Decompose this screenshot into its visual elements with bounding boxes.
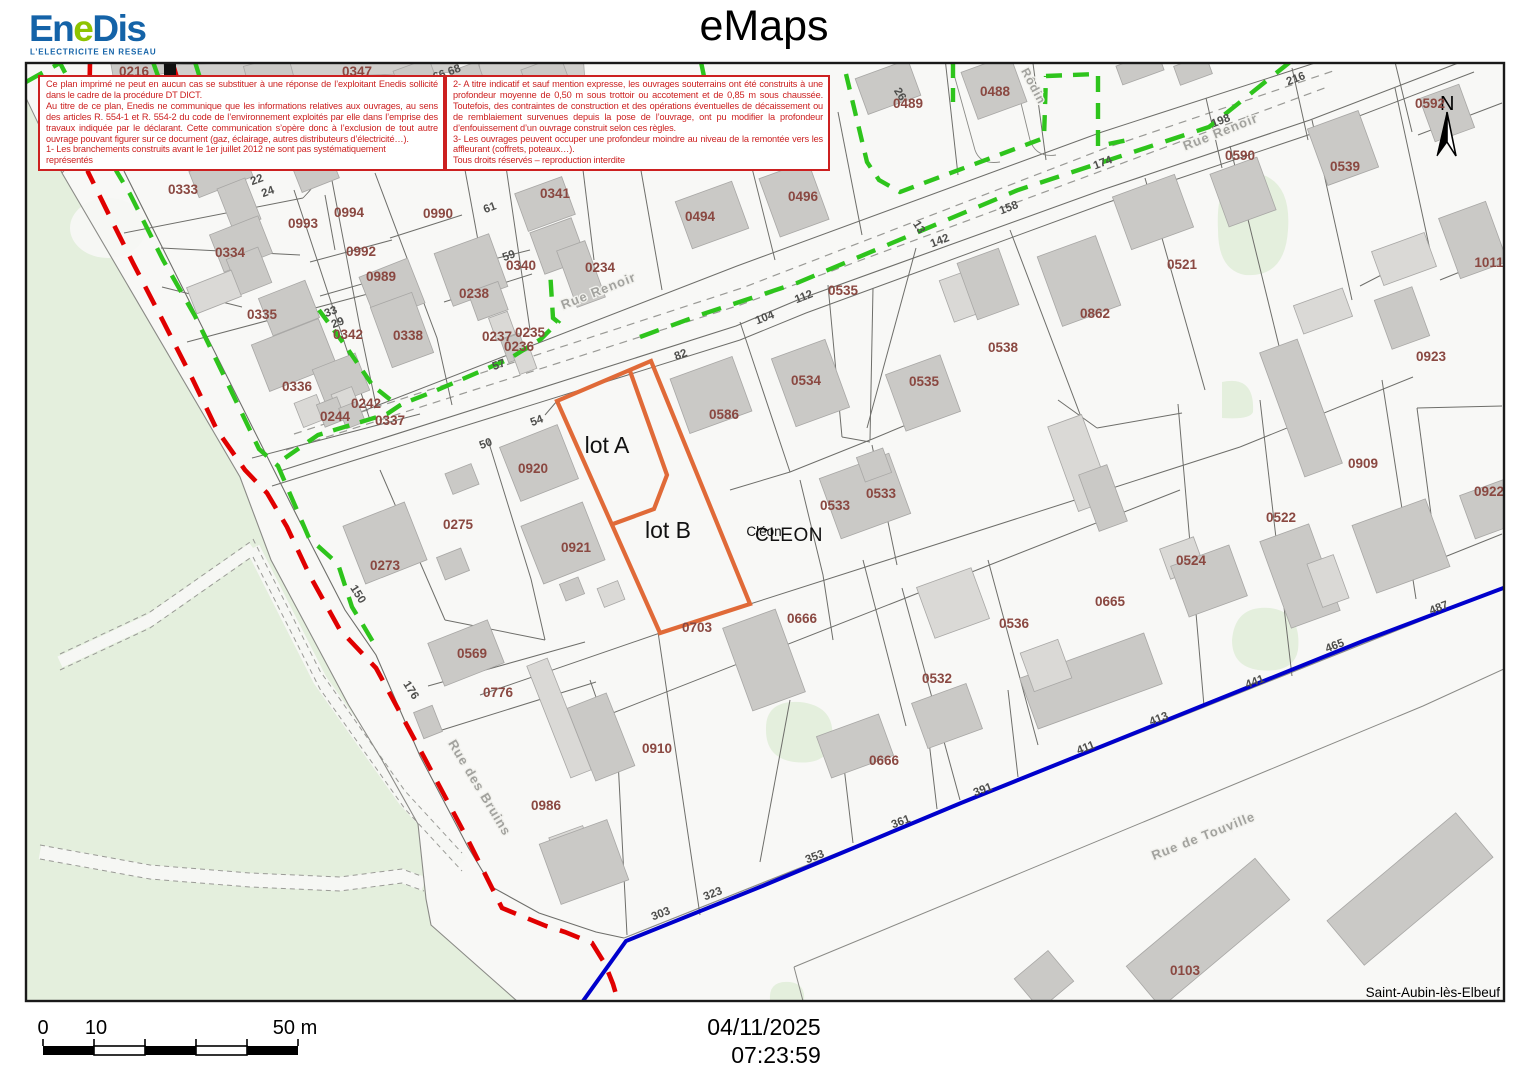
svg-text:0244: 0244	[320, 409, 351, 424]
svg-text:04/11/2025: 04/11/2025	[707, 1014, 820, 1040]
svg-text:0533: 0533	[820, 498, 851, 513]
svg-text:0922: 0922	[1474, 484, 1504, 499]
svg-text:0333: 0333	[168, 182, 199, 197]
svg-text:lot A: lot A	[585, 432, 630, 458]
svg-text:0535: 0535	[909, 374, 940, 389]
svg-text:0534: 0534	[791, 373, 822, 388]
svg-text:0338: 0338	[393, 328, 424, 343]
svg-text:0539: 0539	[1330, 159, 1360, 174]
svg-text:0273: 0273	[370, 558, 401, 573]
svg-text:0334: 0334	[215, 245, 246, 260]
svg-text:0910: 0910	[642, 741, 672, 756]
svg-text:0337: 0337	[375, 413, 405, 428]
svg-text:0569: 0569	[457, 646, 487, 661]
svg-text:0538: 0538	[988, 340, 1019, 355]
svg-text:0494: 0494	[685, 209, 716, 224]
svg-text:0522: 0522	[1266, 510, 1296, 525]
svg-text:0586: 0586	[709, 407, 740, 422]
svg-text:0992: 0992	[346, 244, 376, 259]
svg-text:0103: 0103	[1170, 963, 1201, 978]
svg-text:0336: 0336	[282, 379, 313, 394]
svg-text:0536: 0536	[999, 616, 1030, 631]
svg-text:0496: 0496	[788, 189, 819, 204]
svg-text:0242: 0242	[351, 396, 381, 411]
svg-text:0776: 0776	[483, 685, 514, 700]
svg-text:0990: 0990	[423, 206, 453, 221]
svg-text:0533: 0533	[866, 486, 897, 501]
svg-text:0989: 0989	[366, 269, 396, 284]
svg-text:0920: 0920	[518, 461, 548, 476]
svg-text:0235: 0235	[515, 325, 546, 340]
svg-text:Saint-Aubin-lès-Elbeuf: Saint-Aubin-lès-Elbeuf	[1366, 985, 1501, 1000]
svg-text:0666: 0666	[787, 611, 818, 626]
svg-text:0665: 0665	[1095, 594, 1126, 609]
svg-text:0: 0	[37, 1017, 48, 1039]
svg-text:lot B: lot B	[645, 517, 691, 543]
svg-text:0335: 0335	[247, 307, 278, 322]
svg-text:0521: 0521	[1167, 257, 1198, 272]
svg-text:0703: 0703	[682, 620, 713, 635]
svg-text:1011: 1011	[1474, 255, 1504, 270]
svg-text:0666: 0666	[869, 753, 900, 768]
svg-text:CLEON: CLEON	[755, 525, 823, 546]
svg-text:0234: 0234	[585, 260, 616, 275]
svg-text:0488: 0488	[980, 84, 1011, 99]
svg-text:0532: 0532	[922, 671, 952, 686]
svg-text:0592: 0592	[1415, 96, 1445, 111]
svg-text:0524: 0524	[1176, 553, 1207, 568]
svg-text:0986: 0986	[531, 798, 562, 813]
svg-text:0590: 0590	[1225, 148, 1255, 163]
svg-text:0923: 0923	[1416, 349, 1447, 364]
svg-text:0238: 0238	[459, 286, 490, 301]
svg-text:0909: 0909	[1348, 456, 1378, 471]
svg-text:0236: 0236	[504, 339, 535, 354]
svg-text:10: 10	[85, 1017, 107, 1039]
svg-text:0994: 0994	[334, 205, 365, 220]
svg-text:0993: 0993	[288, 216, 319, 231]
svg-text:0862: 0862	[1080, 306, 1110, 321]
svg-text:0275: 0275	[443, 517, 474, 532]
svg-text:07:23:59: 07:23:59	[731, 1042, 821, 1068]
svg-text:0535: 0535	[828, 283, 859, 298]
svg-text:50 m: 50 m	[273, 1017, 317, 1039]
svg-text:0341: 0341	[540, 186, 571, 201]
svg-text:0921: 0921	[561, 540, 592, 555]
